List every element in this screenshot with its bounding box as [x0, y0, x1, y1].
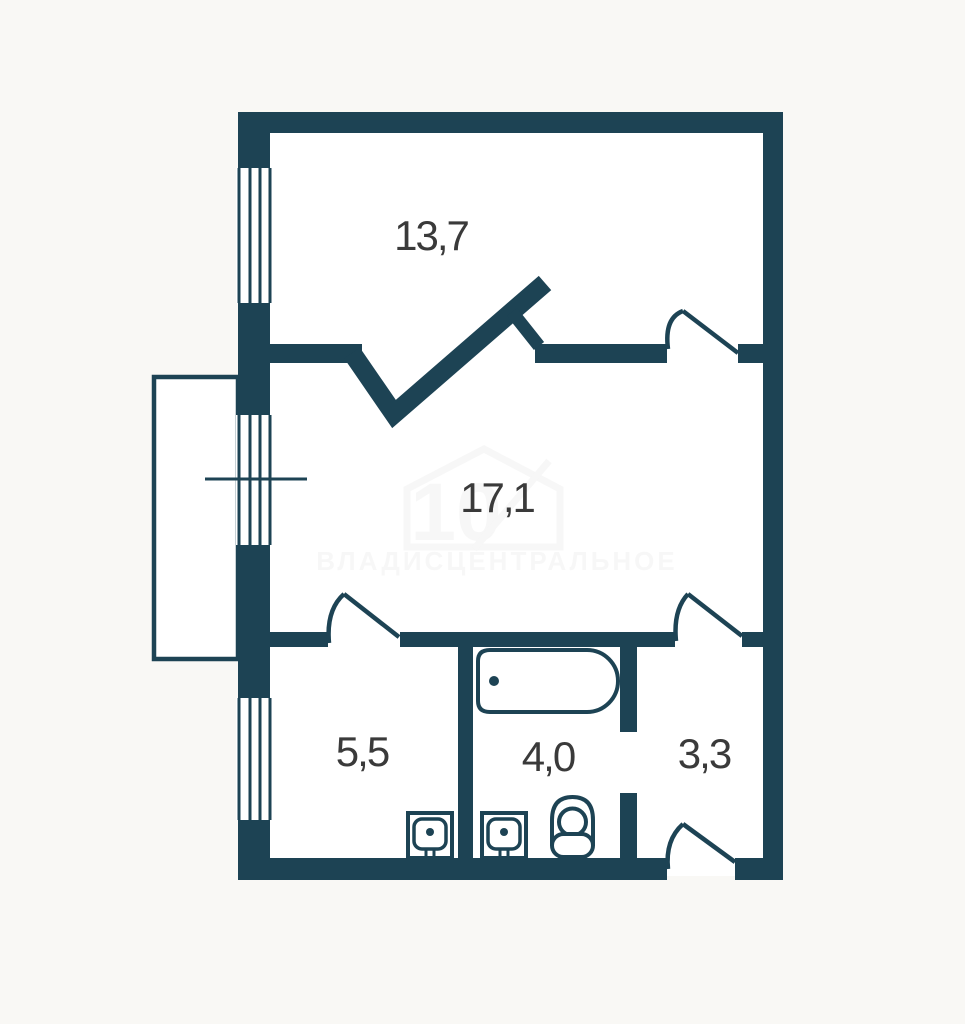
watermark-text: ВЛАДИСЦЕНТРАЛЬНОЕ — [316, 546, 678, 576]
balcony — [154, 377, 238, 659]
window-room-5-5 — [236, 698, 274, 820]
sink-dot — [426, 828, 434, 836]
wall-bottom-left — [238, 858, 667, 880]
wall-bottom-right — [735, 858, 783, 880]
wall-row-left — [266, 632, 328, 647]
window-opening — [236, 168, 274, 303]
sink-dot — [500, 828, 508, 836]
window-room-13-7 — [236, 168, 274, 303]
floor-plan-drawing: 10 ВЛАДИСЦЕНТРАЛЬНОЕ — [0, 0, 965, 1024]
wall-top — [238, 112, 783, 133]
room-label-17-1: 17,1 — [460, 474, 534, 521]
wall-room1-stub — [738, 344, 763, 363]
toilet — [552, 797, 593, 857]
balcony-outline — [154, 377, 238, 659]
kitchen-sink — [408, 813, 452, 858]
wall-row-mid — [400, 632, 675, 647]
bathtub — [478, 650, 618, 712]
floor-plan-page: 10 ВЛАДИСЦЕНТРАЛЬНОЕ — [0, 0, 965, 1024]
room-label-13-7: 13,7 — [394, 212, 468, 259]
room-label-4-0: 4,0 — [522, 733, 575, 780]
wall-bath-hall-bottom — [620, 793, 637, 862]
bathtub-drain-dot — [489, 676, 499, 686]
room-label-5-5: 5,5 — [336, 728, 389, 775]
toilet-base — [552, 834, 593, 857]
wall-right — [763, 112, 783, 880]
wall-bath-hall-top — [620, 646, 637, 732]
wall-room1-right — [535, 344, 667, 363]
room-label-3-3: 3,3 — [678, 730, 731, 777]
wall-row-stub — [742, 632, 763, 647]
wall-kitchen-bath — [458, 645, 473, 860]
window-opening — [236, 698, 274, 820]
bathroom-sink — [482, 813, 526, 858]
